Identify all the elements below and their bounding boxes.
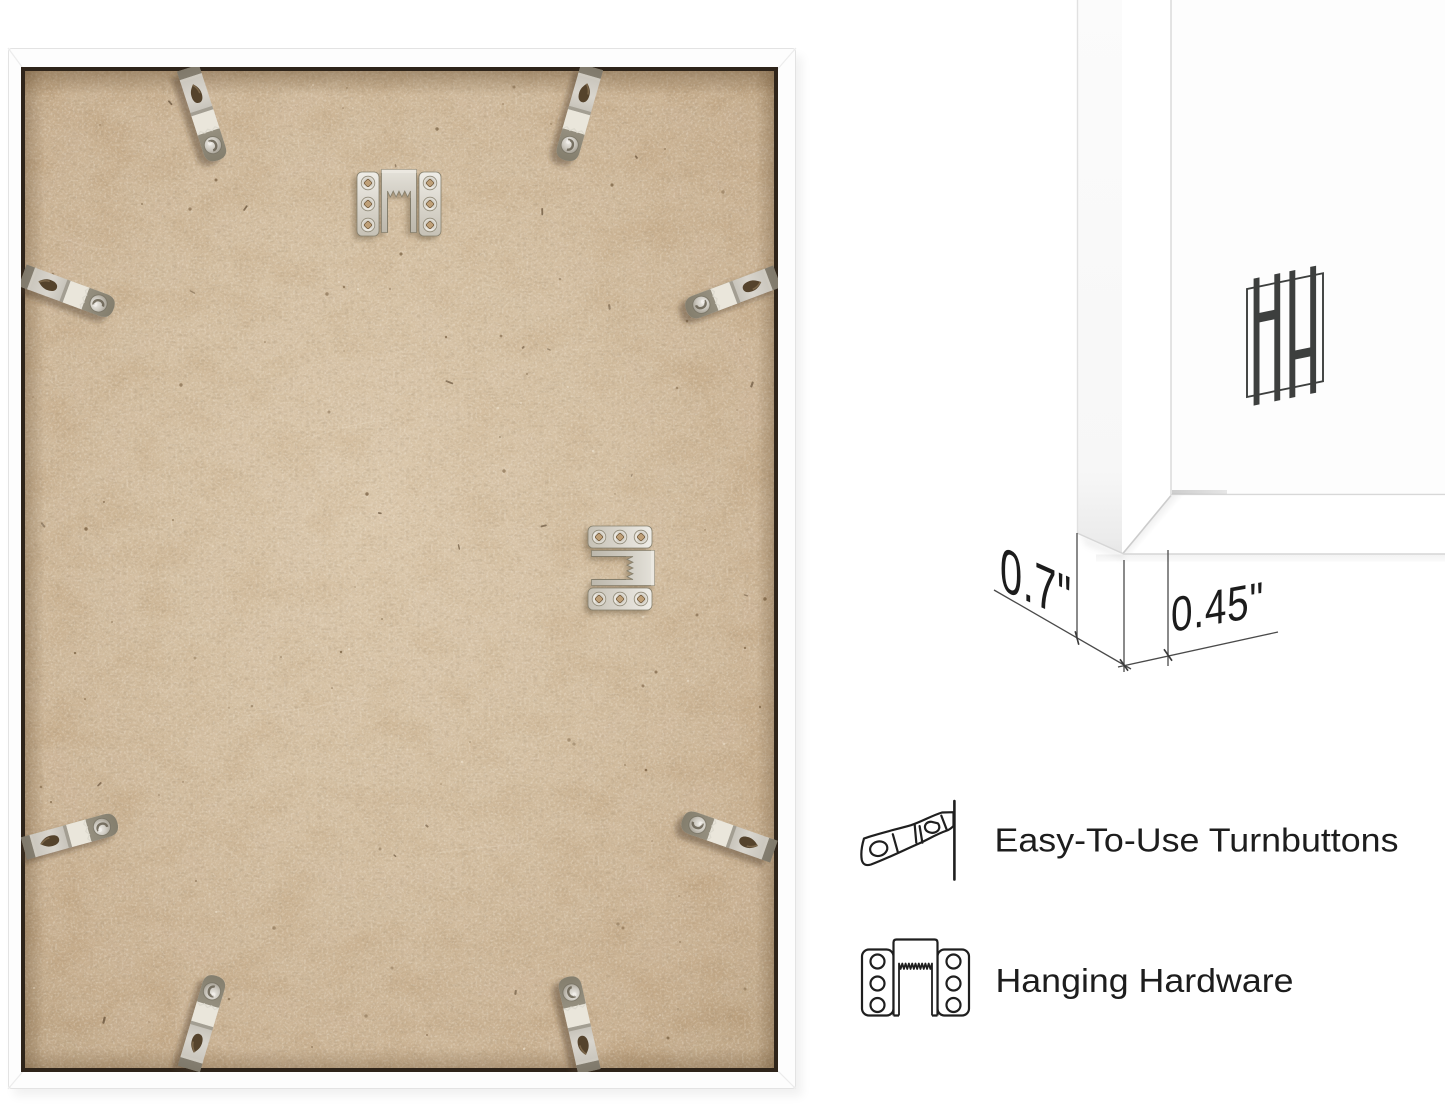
svg-text:Easy-To-Use Turnbuttons: Easy-To-Use Turnbuttons bbox=[995, 823, 1399, 860]
svg-text:0.45": 0.45" bbox=[1171, 573, 1264, 643]
svg-text:Hanging Hardware: Hanging Hardware bbox=[996, 963, 1294, 1000]
svg-text:0.7": 0.7" bbox=[1000, 535, 1072, 635]
